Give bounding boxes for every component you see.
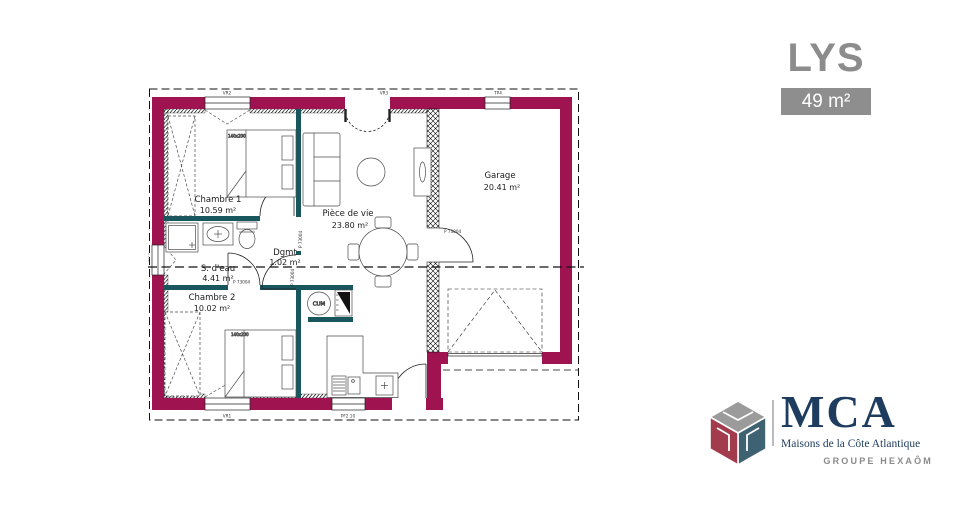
double-bed-icon [227, 130, 296, 197]
room-label-chambre1: Chambre 1 [195, 195, 242, 205]
window-ref-top-center: VR3 [380, 91, 389, 96]
garage-door [448, 289, 542, 356]
washbasin-icon [203, 223, 233, 245]
area-badge: 49 m² [781, 88, 871, 115]
toilet-icon [237, 222, 257, 249]
logo-group: GROUPE HEXAÔM [781, 456, 933, 466]
cube-icon [706, 399, 770, 467]
logo-text-block: MCA Maisons de la Côte Atlantique GROUPE… [781, 388, 933, 466]
window-ref-top-right: TP4 [493, 91, 502, 96]
logo-tagline: Maisons de la Côte Atlantique [781, 438, 933, 450]
living-furniture: CUM [303, 133, 431, 398]
door-ref: P 73004 [444, 229, 462, 234]
shower-icon [166, 223, 198, 252]
room-area-garage: 20.41 m² [484, 183, 520, 192]
bed-size-label: 140x200 [231, 332, 249, 337]
room-label-dgmt: Dgmt [273, 248, 297, 258]
kitchen-counter-icon [327, 336, 398, 398]
page: 140x200 [0, 0, 960, 532]
room-label-sejour: Pièce de vie [322, 208, 373, 219]
garage-partition-wall [427, 109, 439, 352]
door-ref: P 73004 [233, 280, 251, 285]
bed-size-label: 140x200 [228, 134, 246, 139]
mca-cube-logo [706, 399, 770, 471]
bathroom-fixtures [166, 222, 257, 252]
plan-title: LYS [756, 36, 896, 81]
logo-brand: MCA [781, 388, 933, 436]
room-area-sejour: 23.80 m² [332, 221, 368, 230]
door-ref: P 73004 [290, 268, 295, 286]
window-ref-bottom-center: PF2.10 [341, 414, 356, 419]
window-ref-left: 0.60 [148, 252, 150, 262]
floor-plan: 140x200 [148, 86, 584, 430]
entrance-door [345, 109, 390, 132]
tv-unit-icon [414, 148, 431, 196]
room-label-garage: Garage [484, 171, 515, 181]
double-bed-icon [225, 330, 296, 397]
water-heater-label: CUM [313, 302, 326, 308]
floor-plan-drawing: 140x200 [148, 86, 584, 426]
room-area-chambre1: 10.59 m² [200, 206, 236, 215]
bedroom2-furniture: 140x200 [165, 312, 296, 397]
room-area-sdeau: 4.41 m² [202, 274, 233, 283]
room-area-chambre2: 10.02 m² [194, 304, 230, 313]
room-label-sdeau: S. d'eau [201, 264, 235, 274]
sofa-icon [303, 133, 340, 206]
room-area-dgmt: 1.02 m² [269, 258, 300, 267]
window-ref-bottom-left: VR1 [223, 414, 232, 419]
window-ref-top-left: VR2 [223, 91, 232, 96]
coffee-table-icon [357, 158, 385, 186]
logo-divider [772, 400, 774, 446]
door-ref: P 73004 [298, 230, 303, 248]
room-label-chambre2: Chambre 2 [189, 293, 236, 303]
